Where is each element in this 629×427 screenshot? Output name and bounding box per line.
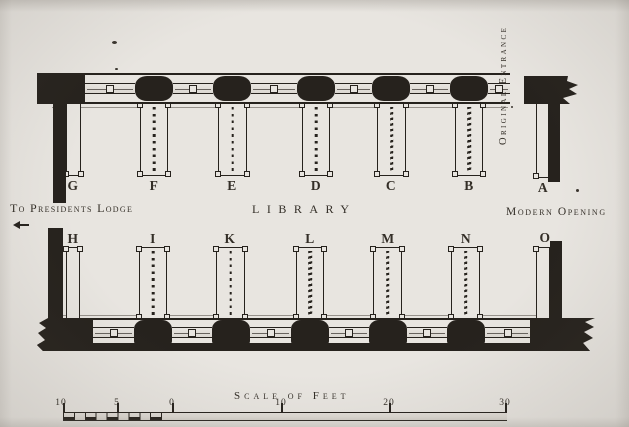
scan-speck <box>511 106 513 108</box>
bookcase-o <box>536 247 550 319</box>
bay-label-e: E <box>220 178 244 194</box>
bay-label-k: K <box>218 231 242 247</box>
entrance-wall-fragment <box>524 76 578 104</box>
bay-label-i: I <box>141 231 165 247</box>
entrance-jamb-wall <box>548 103 560 182</box>
scale-bar-subdivisions <box>63 413 172 420</box>
bay-label-g: G <box>61 178 85 194</box>
case-foot <box>244 171 250 177</box>
wall-pier <box>450 76 488 101</box>
window-bay <box>85 83 135 94</box>
wall-pier <box>372 76 410 101</box>
bay-label-m: M <box>376 231 400 247</box>
library-plan-scan: G F E D C B A H I K L M N O Original Ent… <box>0 0 629 427</box>
bay-label-b: B <box>457 178 481 194</box>
wall-pier <box>213 76 251 101</box>
window-bay <box>173 83 213 94</box>
top-plinth-line <box>52 107 508 108</box>
presidents-lodge-arrow-icon <box>13 221 29 229</box>
case-foot <box>533 173 539 179</box>
window-bay <box>407 327 447 338</box>
wall-pier <box>135 76 173 101</box>
bay-label-n: N <box>454 231 478 247</box>
case-foot <box>480 171 486 177</box>
window-bay <box>485 327 530 338</box>
wall-pier <box>297 76 335 101</box>
bookcase-n <box>451 247 480 319</box>
bookcase-g <box>66 103 81 176</box>
window-bay <box>250 327 291 338</box>
scale-bar <box>63 412 507 421</box>
bay-label-h: H <box>61 231 85 247</box>
modern-opening-jamb-wall <box>550 241 562 323</box>
bookcase-h <box>66 247 80 319</box>
scale-title: Scale of Feet <box>234 390 350 402</box>
window-bay <box>172 327 212 338</box>
bottom-wall <box>37 318 595 351</box>
window-bay <box>93 327 134 338</box>
case-foot <box>215 171 221 177</box>
window-bay <box>335 83 372 94</box>
bookcase-f <box>140 103 168 176</box>
library-label: Library <box>252 202 357 217</box>
case-foot <box>165 171 171 177</box>
wall-outer-face <box>37 343 595 351</box>
bookcase-e <box>218 103 247 176</box>
bookcase-m <box>373 247 402 319</box>
case-foot <box>452 171 458 177</box>
bay-label-a: A <box>531 180 555 196</box>
to-presidents-lodge-label: To Presidents Lodge <box>10 201 133 216</box>
bay-label-c: C <box>379 178 403 194</box>
original-entrance-label: Original Entrance <box>498 3 509 145</box>
case-foot <box>533 246 539 252</box>
case-foot <box>403 171 409 177</box>
case-foot <box>78 171 84 177</box>
window-bay <box>251 83 297 94</box>
bookcase-k <box>216 247 245 319</box>
case-foot <box>299 171 305 177</box>
bay-label-l: L <box>298 231 322 247</box>
bay-label-d: D <box>304 178 328 194</box>
case-foot <box>327 171 333 177</box>
scan-speck <box>112 41 117 44</box>
scan-speck <box>115 68 118 70</box>
case-foot <box>374 171 380 177</box>
bookcase-d <box>302 103 330 176</box>
bookcase-i <box>139 247 167 319</box>
bookcase-l <box>296 247 324 319</box>
case-foot <box>242 246 248 252</box>
bookcase-c <box>377 103 406 176</box>
bookcase-b <box>455 103 483 176</box>
bay-label-o: O <box>533 230 557 246</box>
scale-tick-label: 10 <box>53 398 69 408</box>
window-bay <box>410 83 450 94</box>
scan-speck <box>576 189 579 192</box>
window-bay <box>329 327 369 338</box>
case-foot <box>137 171 143 177</box>
modern-opening-label: Modern Opening <box>506 206 607 218</box>
top-wall <box>37 73 510 104</box>
bay-label-f: F <box>142 178 166 194</box>
